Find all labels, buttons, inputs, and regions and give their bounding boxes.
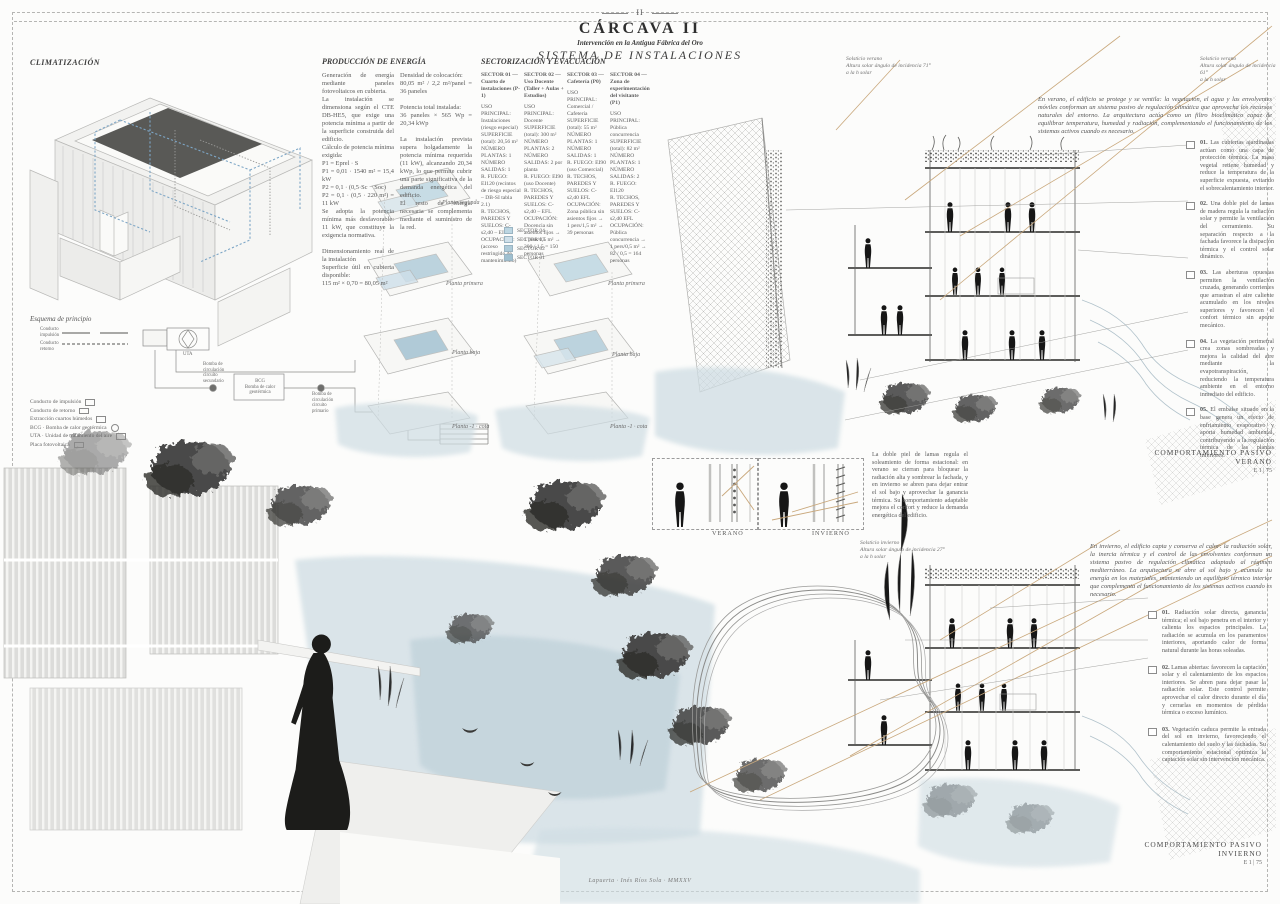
sector-legend: SECTOR 04 SECTOR 03 SECTOR 02 SECTOR 01: [504, 226, 545, 262]
pump-symbol: [111, 424, 119, 432]
note-marker: [1186, 271, 1195, 279]
plan-label: Planta baja: [452, 350, 480, 356]
sun-label-invierno: Solsticio invierno Altura solar ángulo d…: [860, 540, 980, 561]
legend-item: UTA · Unidad de tratamiento del aire: [30, 432, 160, 441]
panel-symbol: [74, 442, 84, 449]
sector-04-swatch: [504, 227, 513, 234]
sector-02-swatch: [504, 245, 513, 252]
invierno-intro: En invierno, el edificio capta y conserv…: [1090, 543, 1272, 599]
legend-item: BCG · Bomba de calor geotérmica: [30, 424, 160, 433]
presentation-board: II CÁRCAVA II Intervención en la Antigua…: [0, 0, 1280, 904]
legend-item: Conducto de impulsión: [30, 398, 160, 407]
uta-symbol: [116, 433, 126, 440]
note-marker: [1186, 141, 1195, 149]
invierno-scale-value: E 1 | 75: [1120, 860, 1262, 866]
note-marker: [1186, 202, 1195, 210]
note-item: 03. Vegetación caduca permite la entrada…: [1162, 727, 1266, 765]
credit-line: Lapuerta · Inés Ríos Sola · MMXXV: [555, 878, 725, 884]
duct-symbol: [85, 399, 95, 406]
plan-label: Planta segunda: [442, 200, 480, 206]
plan-label: Planta primera: [446, 281, 483, 287]
louver-diagram-verano: [652, 458, 758, 530]
note-item: 01. Las cubiertas ajardinadas actúan com…: [1200, 140, 1274, 193]
sector-body: USO PRINCIPAL: Comercial / Cafetería SUP…: [567, 90, 607, 237]
plan-label: Planta -1 · cota: [452, 424, 489, 430]
produccion-col2: Densidad de colocación: 80,05 m² / 2,2 m…: [400, 72, 472, 232]
produccion-heading: PRODUCCIÓN DE ENERGÍA: [322, 57, 426, 66]
note-marker: [1148, 728, 1157, 736]
schematic-pump-primary-label: Bomba de circulación circuito primario: [312, 392, 340, 414]
note-item: 01. Radiación solar directa, ganancia té…: [1162, 610, 1266, 656]
plan-label: Planta primera: [608, 281, 645, 287]
verano-notes: 01. Las cubiertas ajardinadas actúan com…: [1200, 140, 1274, 461]
note-marker: [1148, 666, 1157, 674]
schematic-bcg-label: BCG Bomba de calor geotérmica: [238, 379, 282, 396]
note-item: 02. Lamas abiertas: favorecen la captaci…: [1162, 665, 1266, 718]
board-section-title: SISTEMA DE INSTALACIONES: [0, 48, 1280, 63]
schematic-impulsion-label: Conducto impulsión: [40, 327, 62, 338]
invierno-scale-block: COMPORTAMIENTO PASIVO INVIERNO E 1 | 75: [1120, 840, 1262, 866]
sector-title: SECTOR 01 — Cuarto de instalaciones (P-1…: [481, 72, 521, 100]
plan-label: Planta baja: [612, 352, 640, 358]
sector-01-swatch: [504, 254, 513, 261]
sector-03-swatch: [504, 236, 513, 243]
sector-body: USO PRINCIPAL: Pública concurrencia SUPE…: [610, 111, 650, 265]
note-marker: [1186, 408, 1195, 416]
title-block: II CÁRCAVA II Intervención en la Antigua…: [0, 2, 1280, 63]
verano-scale-block: COMPORTAMIENTO PASIVO VERANO E 1 | 75: [1130, 448, 1272, 474]
note-item: 04. La vegetación perimetral crea zonas …: [1200, 339, 1274, 400]
board-title: CÁRCAVA II: [565, 22, 715, 36]
sector-title: SECTOR 03 — Cafetería (P0): [567, 72, 607, 86]
climatizacion-axon: [30, 98, 312, 346]
sun-label-verano-left: Solsticio verano Altura solar ángulo de …: [846, 56, 966, 77]
sector-03-column: SECTOR 03 — Cafetería (P0) USO PRINCIPAL…: [567, 72, 607, 237]
legend-item: Placa fotovoltaica: [30, 441, 160, 450]
note-marker: [1186, 340, 1195, 348]
duct-symbol: [96, 416, 106, 423]
plan-label: Planta -1 · cota: [610, 424, 647, 430]
schematic-pump-secondary-label: Bomba de circulación circuito secundario: [203, 362, 231, 384]
note-item: 02. Una doble piel de lamas de madera re…: [1200, 201, 1274, 262]
sector-04-column: SECTOR 04 — Zona de experimentación del …: [610, 72, 650, 265]
legend-item: Conducto de retorno: [30, 407, 160, 416]
verano-scale-value: E 1 | 75: [1130, 468, 1272, 474]
louver-verano-caption: VERANO: [712, 530, 744, 537]
sun-label-verano-right: Solsticio verano Altura solar ángulo de …: [1200, 56, 1276, 84]
sector-title: SECTOR 04 — Zona de experimentación del …: [610, 72, 650, 107]
climatizacion-legend: Conducto de impulsión Conducto de retorn…: [30, 398, 160, 449]
duct-symbol: [79, 408, 89, 415]
climatizacion-heading: CLIMATIZACIÓN: [30, 58, 100, 67]
sectorizacion-heading: SECTORIZACIÓN Y EVACUACIÓN: [481, 57, 606, 66]
invierno-notes: 01. Radiación solar directa, ganancia té…: [1162, 610, 1266, 765]
page-number: II: [588, 8, 691, 17]
verano-intro: En verano, el edificio se protege y se v…: [1038, 96, 1272, 136]
sector-title: SECTOR 02 — Uso Docente (Taller + Aulas …: [524, 72, 564, 100]
schematic-uta-label: UTA: [183, 352, 192, 358]
esquema-principio-label: Esquema de principio: [30, 315, 91, 323]
louver-diagram-invierno: [758, 458, 864, 530]
invierno-scale-label: COMPORTAMIENTO PASIVO INVIERNO: [1120, 840, 1262, 858]
board-subtitle: Intervención en la Antigua Fábrica del O…: [0, 39, 1280, 47]
verano-section: [655, 26, 1276, 455]
legend-item: Extracción cuartos húmedos: [30, 415, 160, 424]
produccion-col1: Generación de energía mediante paneles f…: [322, 72, 394, 288]
note-item: 03. Las aberturas opuestas permiten la v…: [1200, 270, 1274, 331]
verano-scale-label: COMPORTAMIENTO PASIVO VERANO: [1130, 448, 1272, 466]
schematic-retorno-label: Conducto retorno: [40, 341, 62, 352]
louver-invierno-caption: INVIERNO: [812, 530, 850, 537]
note-marker: [1148, 611, 1157, 619]
louver-paragraph: La doble piel de lamas regula el soleami…: [872, 452, 968, 520]
